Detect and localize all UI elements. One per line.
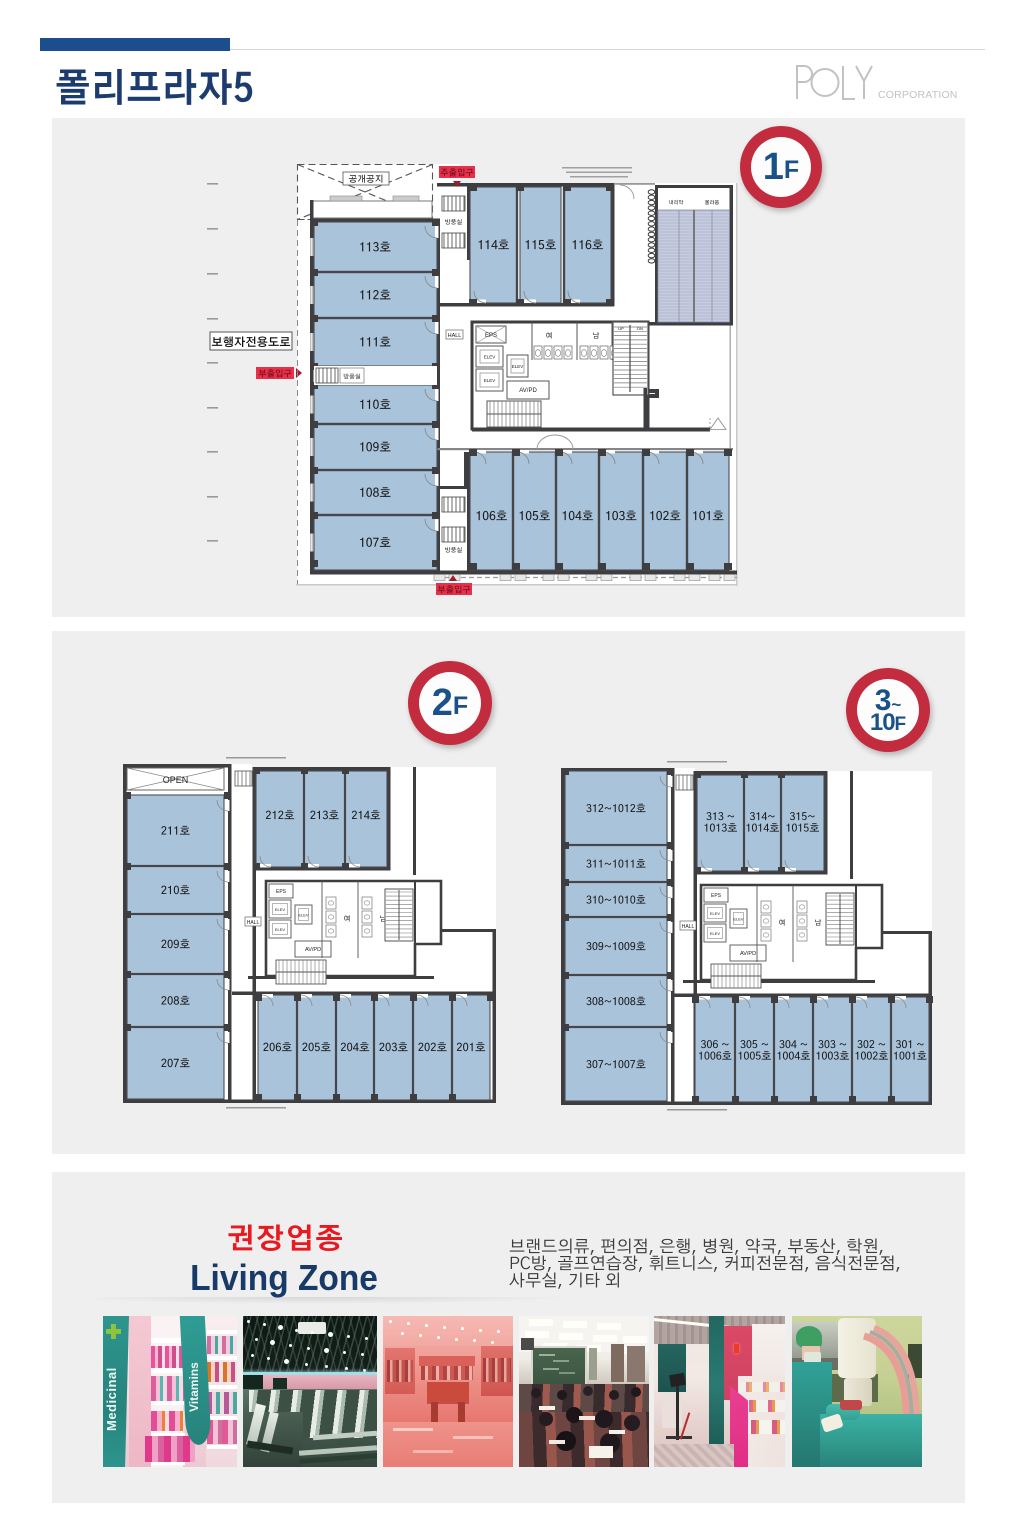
svg-text:ELEV: ELEV [275,927,286,932]
svg-text:DN: DN [637,326,643,331]
svg-text:ELEV: ELEV [484,378,496,383]
svg-text:UP: UP [618,326,624,331]
svg-text:ELEV: ELEV [275,907,286,912]
svg-text:AV/PD: AV/PD [740,951,756,957]
svg-text:EPS: EPS [485,333,497,339]
svg-text:CORPORATION: CORPORATION [878,89,958,101]
svg-text:ELEV: ELEV [298,913,309,918]
svg-text:ELEV: ELEV [710,931,721,936]
svg-text:OPEN: OPEN [163,775,189,785]
svg-text:EPS: EPS [711,893,722,899]
svg-text:ELEV: ELEV [710,911,721,916]
svg-text:HALL: HALL [247,920,260,926]
svg-text:HALL: HALL [448,333,462,339]
svg-text:EPS: EPS [276,889,287,895]
svg-text:AV/PD: AV/PD [519,388,537,394]
svg-text:AV/PD: AV/PD [305,947,321,953]
svg-text:HALL: HALL [682,924,695,930]
svg-text:ELEV: ELEV [484,355,496,360]
svg-text:ELEV: ELEV [512,364,524,369]
svg-text:ELEV: ELEV [733,917,744,922]
